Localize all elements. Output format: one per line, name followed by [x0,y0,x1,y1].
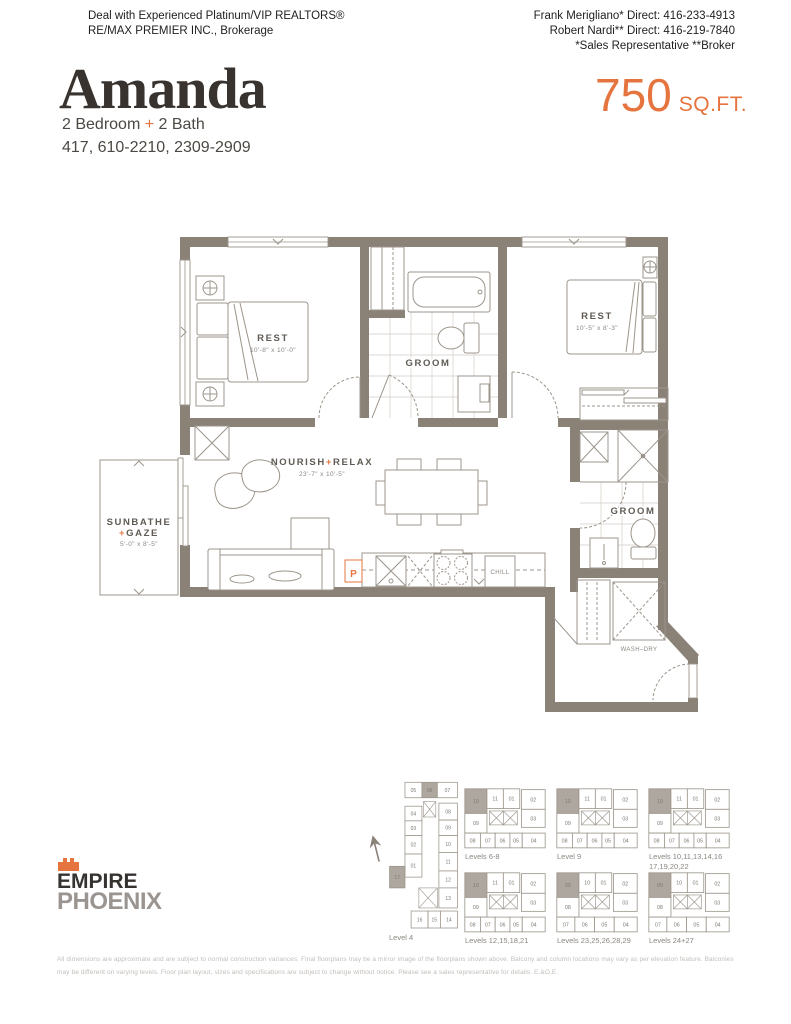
svg-text:08: 08 [565,905,571,911]
keyplan-label: Levels 10,11,13,14,1617,19,20,22 [648,852,730,871]
svg-text:06: 06 [684,838,690,844]
svg-text:07: 07 [485,922,491,928]
svg-text:03: 03 [530,900,536,906]
svg-text:09: 09 [565,883,571,889]
flyer-page: Deal with Experienced Platinum/VIP REALT… [0,0,791,1024]
svg-text:01: 01 [411,863,417,869]
keyplan-Levels 24+27: 09100102080307060504Levels 24+27 [648,872,730,946]
svg-text:04: 04 [623,922,629,928]
svg-text:06: 06 [674,922,680,928]
svg-text:17: 17 [394,875,400,881]
svg-text:11: 11 [584,797,590,803]
washer-dryer [613,582,665,640]
room-label-balcony-2: +GAZE [119,528,159,539]
svg-text:11: 11 [492,881,498,887]
svg-text:08: 08 [562,838,568,844]
header-right: Frank Merigliano* Direct: 416-233-4913 R… [534,9,735,55]
svg-text:04: 04 [531,922,537,928]
header-left-line1: Deal with Experienced Platinum/VIP REALT… [88,9,344,24]
keyplan-Levels 23,25,26,28,29: 09100102080307060504Levels 23,25,26,28,2… [556,872,638,946]
svg-text:03: 03 [714,816,720,822]
svg-text:05: 05 [411,788,417,794]
room-dim-balcony: 5'-0" x 8'-5" [120,541,158,548]
svg-text:07: 07 [655,922,661,928]
svg-text:04: 04 [715,922,721,928]
svg-text:12: 12 [445,877,451,883]
svg-text:05: 05 [697,838,703,844]
svg-text:05: 05 [693,922,699,928]
svg-text:10: 10 [584,881,590,887]
room-label-living: NOURISH+RELAX [271,457,373,468]
floor-plan: REST 10'-8" x 10'-0" GROOM REST 10'-5" x… [90,230,710,755]
keyplan-Level 9: 1011010209030807060504Level 9 [556,788,638,862]
room-label-rest1: REST [257,333,289,344]
svg-text:11: 11 [492,797,498,803]
svg-text:11: 11 [676,797,682,803]
label-wash-dry: WASH–DRY [621,647,658,653]
svg-text:08: 08 [657,905,663,911]
bed-bath-line: 2 Bedroom + 2 Bath [62,116,205,134]
dining-set [376,459,487,525]
svg-text:01: 01 [601,881,607,887]
svg-text:09: 09 [473,905,479,911]
room-dim-rest1: 10'-8" x 10'-0" [250,347,296,354]
svg-text:06: 06 [500,838,506,844]
svg-text:08: 08 [470,838,476,844]
svg-text:10: 10 [473,799,479,805]
keyplan-label: Levels 23,25,26,28,29 [556,936,638,945]
svg-text:10: 10 [473,883,479,889]
sqft: 750SQ.FT. [595,68,747,122]
svg-text:06: 06 [582,922,588,928]
keyplans: 0506070403020108091011121317161514Level … [368,772,758,962]
linen-closet [554,580,610,644]
logo-line2: PHOENIX [57,891,162,913]
svg-text:13: 13 [445,896,451,902]
svg-text:07: 07 [485,838,491,844]
header-right-line3: *Sales Representative **Broker [534,39,735,54]
closet-groom2 [580,432,608,462]
svg-text:02: 02 [622,881,628,887]
toilet-groom2 [631,519,656,559]
svg-text:09: 09 [565,821,571,827]
keyplan-Levels 10,11,13,14,16: 1011010209030807060504Levels 10,11,13,14… [648,788,730,871]
svg-text:10: 10 [657,799,663,805]
svg-text:06: 06 [500,922,506,928]
svg-text:08: 08 [654,838,660,844]
header-right-line1: Frank Merigliano* Direct: 416-233-4913 [534,9,735,24]
svg-text:02: 02 [714,797,720,803]
room-label-groom1: GROOM [406,358,451,369]
svg-text:03: 03 [411,826,417,832]
closet-rest1 [371,247,404,310]
svg-text:04: 04 [715,838,721,844]
svg-text:16: 16 [417,917,423,923]
header-left-line2: RE/MAX PREMIER INC., Brokerage [88,24,344,39]
svg-text:01: 01 [509,881,515,887]
room-dim-rest2: 10'-5" x 8'-3" [576,325,618,332]
svg-text:02: 02 [530,797,536,803]
svg-text:03: 03 [622,900,628,906]
svg-text:14: 14 [446,917,452,923]
keyplan-label: Level 9 [556,852,638,861]
svg-text:07: 07 [445,788,451,794]
bathtub [408,272,490,312]
keyplan-Levels 6-8: 1011010209030807060504Levels 6-8 [464,788,546,862]
svg-text:09: 09 [657,821,663,827]
svg-text:09: 09 [473,821,479,827]
svg-text:01: 01 [509,797,515,803]
room-dim-living: 23'-7" x 10'-5" [299,471,345,478]
svg-text:10: 10 [565,799,571,805]
svg-text:02: 02 [411,843,417,849]
svg-text:11: 11 [446,860,451,866]
bed-rest2 [567,257,657,354]
kitchen [345,550,545,587]
svg-text:09: 09 [657,883,663,889]
svg-text:02: 02 [714,881,720,887]
svg-text:08: 08 [470,922,476,928]
svg-text:05: 05 [513,838,519,844]
room-label-groom2: GROOM [611,506,656,517]
sofa [208,518,334,590]
svg-text:06: 06 [427,788,433,794]
keyplan-Level 4: 0506070403020108091011121317161514Level … [388,780,462,942]
svg-text:05: 05 [601,922,607,928]
svg-text:08: 08 [445,809,451,815]
keyplan-Levels 12,15,18,21: 1011010209030807060504Levels 12,15,18,21 [464,872,546,946]
svg-text:04: 04 [411,811,417,817]
svg-text:05: 05 [605,838,611,844]
svg-text:10: 10 [676,881,682,887]
svg-text:02: 02 [530,881,536,887]
svg-text:04: 04 [531,838,537,844]
svg-text:07: 07 [563,922,569,928]
sink-groom2 [590,538,618,568]
svg-text:15: 15 [431,917,437,923]
room-label-rest2: REST [581,311,613,322]
sink-groom1 [458,376,490,412]
keyplan-label: Level 4 [388,933,462,942]
label-pantry: P [350,569,357,580]
svg-text:04: 04 [623,838,629,844]
svg-text:02: 02 [622,797,628,803]
svg-text:06: 06 [592,838,598,844]
keyplan-label: Levels 12,15,18,21 [464,936,546,945]
room-label-balcony-1: SUNBATHE [107,517,172,528]
svg-text:03: 03 [622,816,628,822]
label-chill: CHILL [490,570,509,576]
unit-numbers-line: 417, 610-2210, 2309-2909 [62,139,251,157]
closet-rest2 [580,388,668,420]
svg-text:07: 07 [669,838,675,844]
svg-text:01: 01 [601,797,607,803]
svg-text:03: 03 [530,816,536,822]
header-right-line2: Robert Nardi** Direct: 416-219-7840 [534,24,735,39]
keyplan-label: Levels 24+27 [648,936,730,945]
header-left: Deal with Experienced Platinum/VIP REALT… [88,9,344,39]
sqft-unit: SQ.FT. [679,93,747,116]
closet-living [195,426,229,460]
sqft-value: 750 [595,69,672,121]
plan-title: Amanda [59,55,266,122]
toilet-groom1 [438,323,479,353]
svg-text:07: 07 [577,838,583,844]
svg-text:09: 09 [445,826,451,832]
empire-phoenix-logo: EMPIRE PHOENIX [57,858,162,913]
svg-text:01: 01 [693,797,699,803]
svg-text:01: 01 [693,881,699,887]
svg-text:03: 03 [714,900,720,906]
bed-rest1 [196,276,308,406]
svg-text:05: 05 [513,922,519,928]
keyplan-label: Levels 6-8 [464,852,546,861]
disclaimer: All dimensions are approximate and are s… [57,953,741,979]
svg-text:10: 10 [445,842,451,848]
